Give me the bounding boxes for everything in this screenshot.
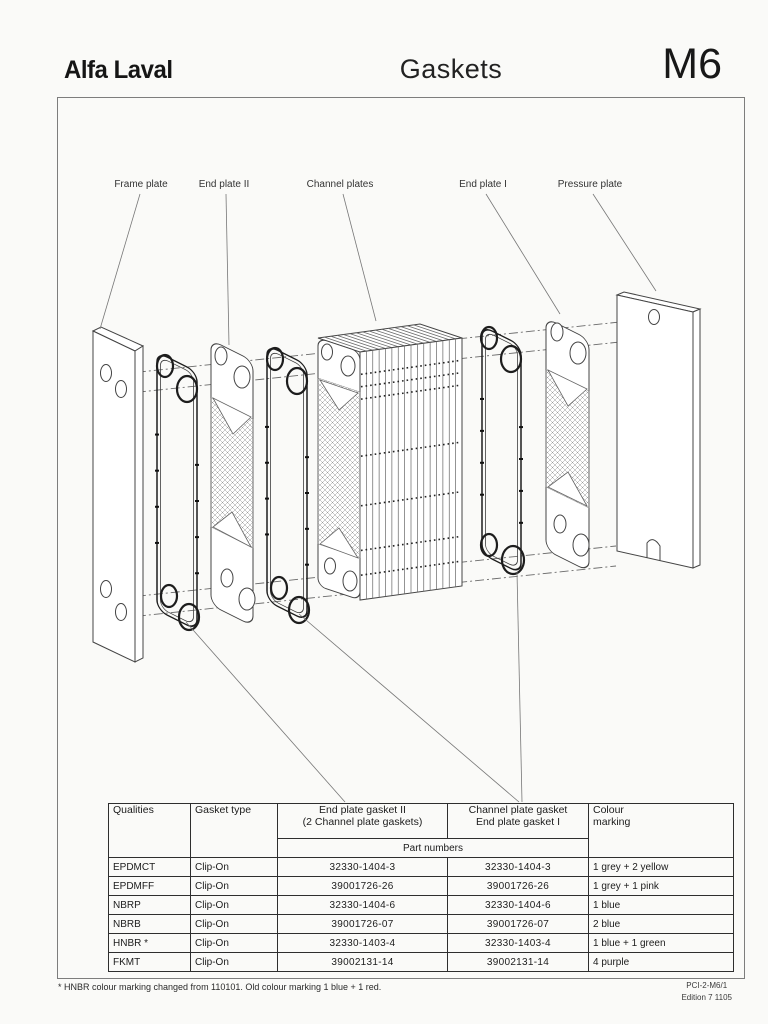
gasket-type-cell: Clip-On	[191, 953, 278, 972]
col-header-end-plate-gasket-line1: End plate gasket II	[282, 804, 443, 816]
frame-plate-label: Frame plate	[114, 179, 167, 190]
col-header-colour-line1: Colour	[593, 804, 729, 816]
quality-cell: HNBR *	[109, 934, 191, 953]
gasket-type-cell: Clip-On	[191, 934, 278, 953]
table-row: EPDMCT Clip-On 32330-1404-3 32330-1404-3…	[109, 858, 734, 877]
end-gasket-part-cell: 39001726-07	[278, 915, 448, 934]
quality-cell: NBRB	[109, 915, 191, 934]
document-reference: PCI-2-M6/1 Edition 7 1105	[681, 980, 732, 1004]
quality-cell: FKMT	[109, 953, 191, 972]
document-edition: Edition 7 1105	[681, 992, 732, 1004]
end-plate-ii-drawing	[211, 340, 255, 626]
colour-marking-cell: 1 grey + 1 pink	[589, 877, 734, 896]
colour-marking-cell: 2 blue	[589, 915, 734, 934]
table-row: NBRB Clip-On 39001726-07 39001726-07 2 b…	[109, 915, 734, 934]
table-row: HNBR * Clip-On 32330-1403-4 32330-1403-4…	[109, 934, 734, 953]
gasket-type-cell: Clip-On	[191, 915, 278, 934]
end-gasket-part-cell: 39001726-26	[278, 877, 448, 896]
channel-gasket-part-cell: 32330-1404-3	[448, 858, 589, 877]
colour-marking-cell: 1 grey + 2 yellow	[589, 858, 734, 877]
gasket-type-cell: Clip-On	[191, 896, 278, 915]
channel-plate-gasket-drawing	[267, 345, 309, 623]
col-header-channel-plate-gasket-line1: Channel plate gasket	[452, 804, 584, 816]
col-header-end-plate-gasket: End plate gasket II (2 Channel plate gas…	[278, 804, 448, 839]
end-plate-i-label: End plate I	[459, 179, 507, 190]
quality-cell: EPDMCT	[109, 858, 191, 877]
channel-plates-label: Channel plates	[307, 179, 374, 190]
channel-gasket-part-cell: 39001726-07	[448, 915, 589, 934]
col-header-qualities: Qualities	[109, 804, 191, 858]
col-header-end-plate-gasket-line2: (2 Channel plate gaskets)	[282, 816, 443, 828]
label-leader-lines	[100, 194, 656, 345]
pressure-plate-label: Pressure plate	[558, 179, 622, 190]
gasket-type-cell: Clip-On	[191, 858, 278, 877]
table-row: EPDMFF Clip-On 39001726-26 39001726-26 1…	[109, 877, 734, 896]
document-page: { "header": {"logo": "Alfa Laval", "titl…	[0, 0, 768, 1024]
hnbr-footnote: * HNBR colour marking changed from 11010…	[58, 982, 381, 992]
gasket-part-numbers-table: Qualities Gasket type End plate gasket I…	[108, 803, 734, 972]
frame-plate-drawing	[93, 327, 143, 662]
end-plate-i-drawing	[546, 318, 589, 571]
pressure-plate-drawing	[617, 292, 700, 568]
channel-gasket-part-cell: 32330-1403-4	[448, 934, 589, 953]
col-header-gasket-type: Gasket type	[191, 804, 278, 858]
end-gasket-part-cell: 32330-1403-4	[278, 934, 448, 953]
quality-cell: NBRP	[109, 896, 191, 915]
channel-plates-stack-drawing	[318, 324, 462, 600]
col-header-colour-marking: Colour marking	[589, 804, 734, 858]
channel-gasket-part-cell: 39001726-26	[448, 877, 589, 896]
colour-marking-cell: 4 purple	[589, 953, 734, 972]
table-row: NBRP Clip-On 32330-1404-6 32330-1404-6 1…	[109, 896, 734, 915]
col-header-colour-line2: marking	[593, 816, 729, 828]
col-header-channel-plate-gasket: Channel plate gasket End plate gasket I	[448, 804, 589, 839]
end-plate-gasket-i-drawing	[481, 326, 524, 574]
end-plate-gasket-ii-drawing	[157, 352, 199, 630]
colour-marking-cell: 1 blue	[589, 896, 734, 915]
colour-marking-cell: 1 blue + 1 green	[589, 934, 734, 953]
end-gasket-part-cell: 32330-1404-3	[278, 858, 448, 877]
channel-gasket-part-cell: 39002131-14	[448, 953, 589, 972]
table-row: FKMT Clip-On 39002131-14 39002131-14 4 p…	[109, 953, 734, 972]
end-plate-ii-label: End plate II	[199, 179, 250, 190]
gasket-type-cell: Clip-On	[191, 877, 278, 896]
channel-gasket-part-cell: 32330-1404-6	[448, 896, 589, 915]
quality-cell: EPDMFF	[109, 877, 191, 896]
end-gasket-part-cell: 39002131-14	[278, 953, 448, 972]
col-header-channel-plate-gasket-line2: End plate gasket I	[452, 816, 584, 828]
document-code: PCI-2-M6/1	[681, 980, 732, 992]
part-numbers-subheader: Part numbers	[278, 839, 589, 858]
end-gasket-part-cell: 32330-1404-6	[278, 896, 448, 915]
